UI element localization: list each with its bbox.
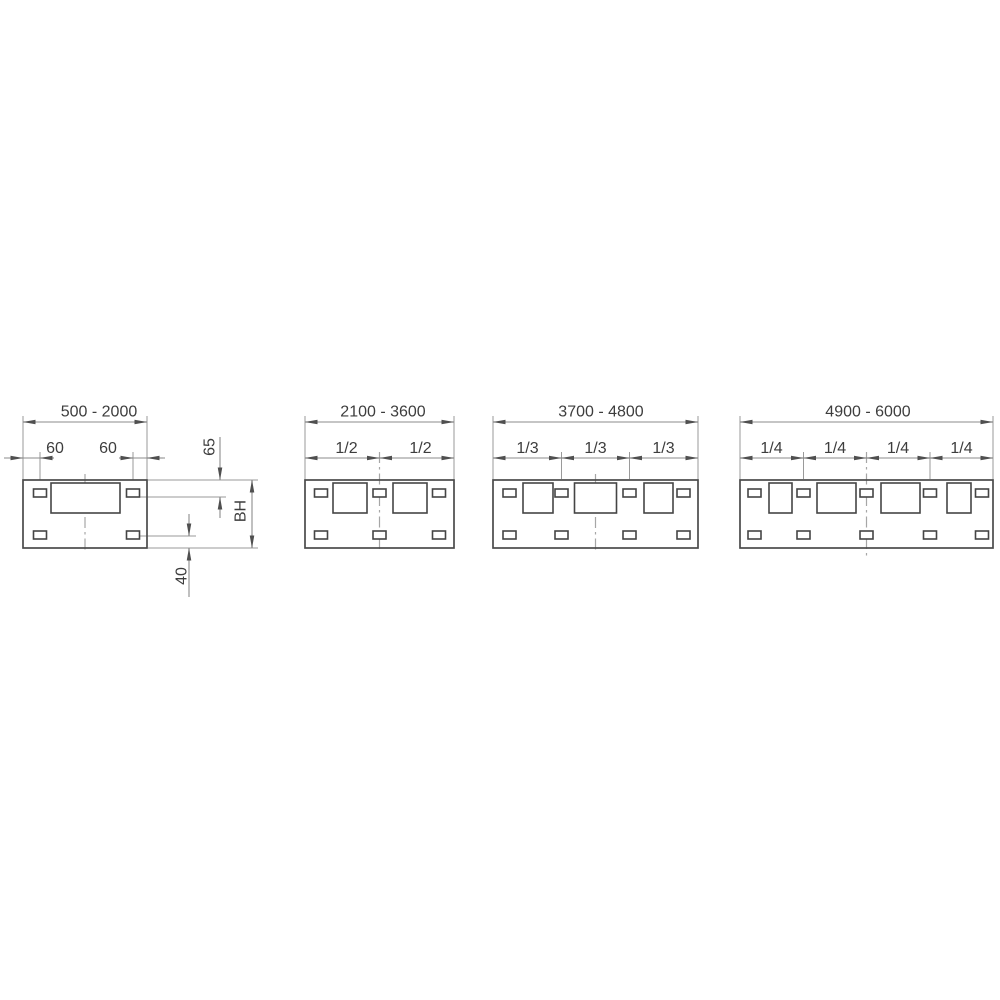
section-dimensions: 1/3 1/3 1/3: [493, 440, 698, 458]
panel-4-group: 4900 - 6000 1/4 1/4 1/4 1/4: [740, 404, 993, 557]
left-offset-label: 60: [46, 440, 64, 457]
mounting-slot: [503, 489, 516, 497]
range-dimension: 4900 - 6000: [740, 404, 993, 423]
range-label: 2100 - 3600: [340, 404, 426, 421]
mounting-slot: [677, 531, 690, 539]
section-label: 1/2: [409, 440, 431, 457]
drawing-canvas: 500 - 2000 60 60 65 BH 40: [0, 0, 1000, 1000]
mounting-slot: [677, 489, 690, 497]
mounting-slot: [373, 489, 386, 497]
panel-1-group: 500 - 2000 60 60 65 BH 40: [4, 404, 258, 598]
right-offset-label: 60: [99, 440, 117, 457]
section-label: 1/4: [824, 440, 846, 457]
mounting-slot: [860, 489, 873, 497]
mounting-slot: [34, 489, 47, 497]
mounting-slot: [433, 531, 446, 539]
section-label: 1/3: [652, 440, 674, 457]
range-dimension: 3700 - 4800: [493, 404, 698, 423]
mounting-slot: [623, 489, 636, 497]
mounting-slot: [797, 489, 810, 497]
mounting-slot: [555, 531, 568, 539]
mounting-slot: [797, 531, 810, 539]
range-label: 4900 - 6000: [825, 404, 911, 421]
panel-2-group: 2100 - 3600 1/2 1/2: [305, 404, 454, 554]
section-label: 1/4: [950, 440, 972, 457]
panel-cutout: [393, 483, 427, 513]
panel-cutout: [644, 483, 673, 513]
section-label: 1/3: [584, 440, 606, 457]
top-offset-dimension: 65: [202, 437, 221, 518]
section-label: 1/2: [335, 440, 357, 457]
section-label: 1/4: [887, 440, 909, 457]
body-height-label: BH: [233, 500, 250, 522]
mounting-slot: [555, 489, 568, 497]
mounting-slot: [34, 531, 47, 539]
mounting-slot: [127, 531, 140, 539]
panel-cutout: [51, 483, 120, 513]
mounting-slot: [315, 531, 328, 539]
panel-cutout: [881, 483, 920, 513]
range-label: 3700 - 4800: [558, 404, 644, 421]
panel-cutout: [769, 483, 792, 513]
body-height-dimension: BH: [233, 480, 253, 548]
panel-3-group: 3700 - 4800 1/3 1/3 1/3: [493, 404, 698, 554]
extension-line: [305, 416, 454, 480]
mounting-slot: [373, 531, 386, 539]
mounting-slot: [976, 531, 989, 539]
dimension-drawing: 500 - 2000 60 60 65 BH 40: [0, 0, 1000, 1000]
top-offset-label: 65: [202, 438, 219, 456]
mounting-slot: [315, 489, 328, 497]
mounting-slot: [860, 531, 873, 539]
range-dimension: 2100 - 3600: [305, 404, 454, 423]
panel-cutout: [333, 483, 367, 513]
bottom-offset-label: 40: [174, 567, 191, 585]
panel-cutout: [817, 483, 856, 513]
panel-cutout: [523, 483, 553, 513]
panel-cutout: [575, 483, 617, 513]
range-dimension: 500 - 2000: [23, 404, 147, 423]
mounting-slot: [748, 489, 761, 497]
panel-cutout: [947, 483, 971, 513]
mounting-slot: [623, 531, 636, 539]
section-label: 1/3: [516, 440, 538, 457]
extension-line: [23, 416, 147, 480]
section-label: 1/4: [760, 440, 782, 457]
mounting-slot: [433, 489, 446, 497]
mounting-slot: [748, 531, 761, 539]
range-label: 500 - 2000: [61, 404, 138, 421]
slot-offset-dimensions: 60 60: [4, 440, 165, 458]
mounting-slot: [924, 531, 937, 539]
mounting-slot: [976, 489, 989, 497]
mounting-slot: [503, 531, 516, 539]
bottom-offset-dimension: 40: [174, 514, 191, 597]
mounting-slot: [924, 489, 937, 497]
mounting-slot: [127, 489, 140, 497]
